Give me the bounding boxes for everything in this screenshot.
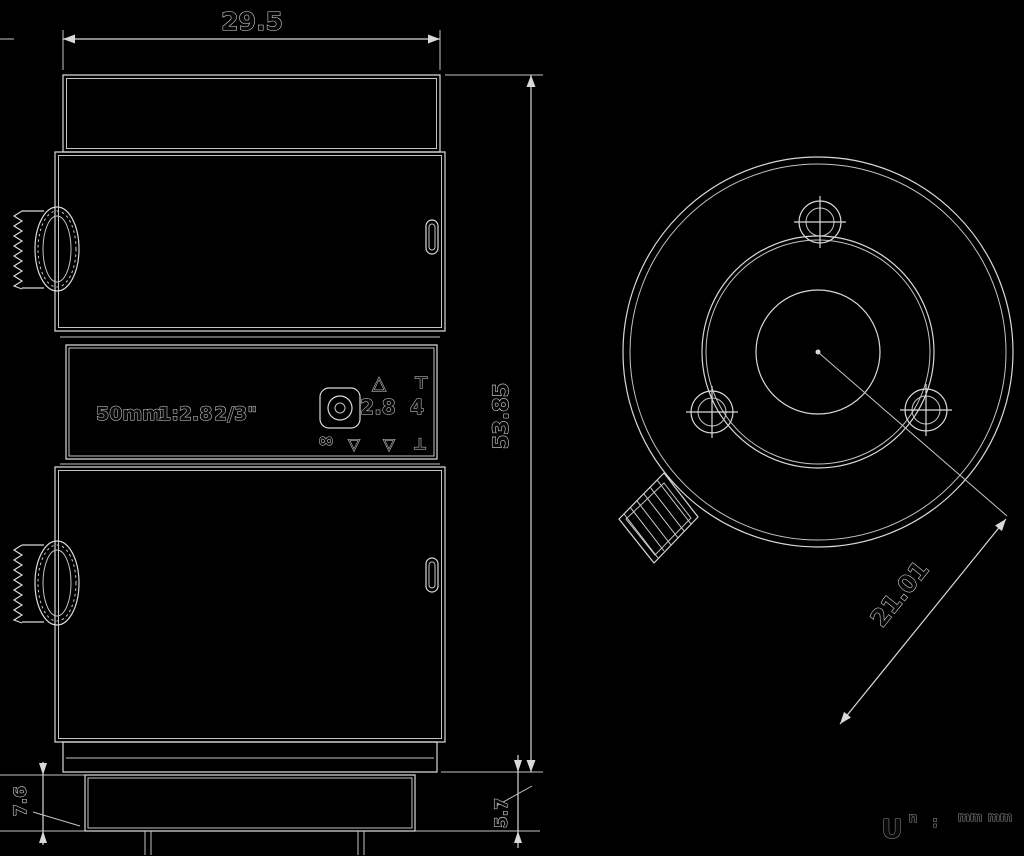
side-view: 50mm 1:2.8 2/3" 2.8 4 △ ⊤ ∞ ▽ ▽ ⊥ 29.5 5… (0, 7, 543, 855)
dimension-right-height: 53.85 (441, 75, 543, 772)
infinity-mark: ∞ (318, 428, 335, 452)
dimension-bottom-right: 5.7 (415, 755, 540, 848)
corner-note-fragment-5: mm (987, 810, 1012, 824)
lens-technical-drawing: 50mm 1:2.8 2/3" 2.8 4 △ ⊤ ∞ ▽ ▽ ⊥ 29.5 5… (0, 0, 1024, 856)
back-view: 21.01 (619, 157, 1013, 724)
dim-right-height-value: 53.85 (489, 383, 513, 449)
dim-bottom-left-value: 7.6 (11, 786, 31, 816)
dim-top-width-value: 29.5 (221, 7, 283, 36)
aperture-index-triangle: △ (372, 373, 386, 394)
max-aperture-label: 1:2.8 (158, 403, 212, 425)
focal-length-label: 50mm (96, 403, 162, 425)
corner-note-fragment-1: U (881, 815, 902, 845)
dim-bottom-right-value: 5.7 (492, 798, 512, 828)
barrel-markings: 50mm 1:2.8 2/3" 2.8 4 △ ⊤ ∞ ▽ ▽ ⊥ (96, 373, 428, 453)
dimension-top-width: 29.5 (0, 7, 440, 70)
mount-screw-lower-left (686, 386, 738, 438)
focus-index-triangle-2: ▽ (383, 435, 395, 453)
focus-knob-upper (14, 207, 79, 291)
image-format-label: 2/3" (214, 403, 257, 425)
focus-index-triangle-1: ▽ (348, 435, 360, 453)
dimension-diagonal: 21.01 (819, 353, 1007, 724)
drawing-canvas: 50mm 1:2.8 2/3" 2.8 4 △ ⊤ ∞ ▽ ▽ ⊥ 29.5 5… (0, 0, 1024, 856)
set-screw-slot-lower (426, 558, 438, 592)
mount-screw-lower-right (900, 384, 952, 436)
dimension-bottom-left: 7.6 (0, 762, 85, 845)
focus-knob-lower (14, 541, 79, 625)
corner-note-fragment-3: : (932, 813, 938, 831)
corner-note-fragment-4: mm (957, 810, 982, 824)
fnumber-4: 4 (410, 395, 424, 419)
focus-index-perp: ⊥ (413, 435, 427, 453)
mount-screw-top (794, 196, 846, 248)
aperture-lock-screw (320, 388, 360, 428)
fnumber-2-8: 2.8 (360, 395, 395, 419)
lens-body-outline (55, 75, 445, 855)
aperture-index-pin: ⊤ (414, 373, 429, 392)
set-screw-slot-upper (426, 220, 438, 254)
corner-note-fragment-2: n (908, 811, 917, 826)
corner-note: U n : mm mm (881, 810, 1012, 845)
